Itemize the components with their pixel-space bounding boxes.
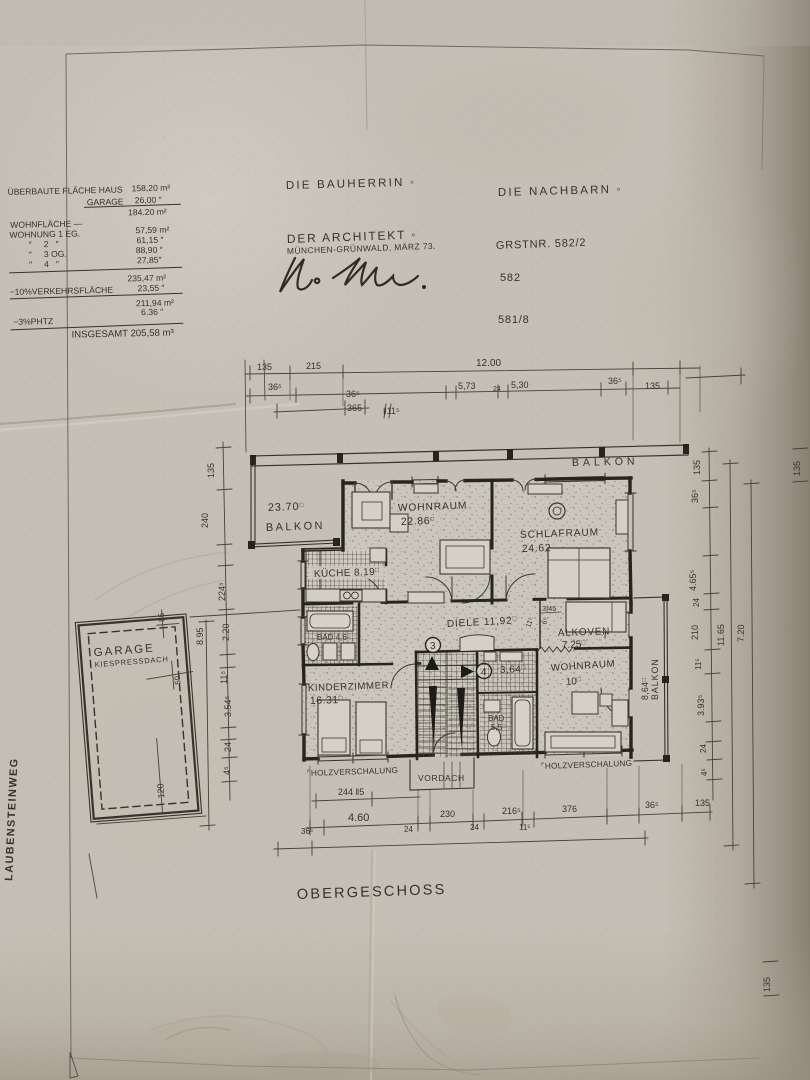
svg-text:4.65⁵: 4.65⁵ bbox=[688, 569, 698, 591]
svg-text:23,55 ″: 23,55 ″ bbox=[137, 283, 164, 294]
svg-text:135: 135 bbox=[695, 798, 710, 808]
svg-text:210: 210 bbox=[690, 625, 700, 640]
svg-text:16.31□: 16.31□ bbox=[310, 694, 344, 707]
svg-text:581/8: 581/8 bbox=[498, 314, 530, 326]
svg-text:ALKOVEN: ALKOVEN bbox=[558, 626, 611, 639]
svg-text:135: 135 bbox=[645, 381, 660, 391]
svg-text:36⁵: 36⁵ bbox=[268, 382, 282, 392]
svg-text:120: 120 bbox=[155, 783, 166, 799]
svg-text:2.20: 2.20 bbox=[221, 623, 231, 641]
svg-text:224⁵: 224⁵ bbox=[217, 582, 227, 601]
svg-text:24: 24 bbox=[699, 744, 708, 753]
svg-text:11⁵: 11⁵ bbox=[219, 671, 229, 684]
svg-text:VORDACH: VORDACH bbox=[418, 773, 465, 783]
svg-text:BAD: BAD bbox=[488, 714, 505, 723]
svg-text:158,20 m²: 158,20 m² bbox=[131, 183, 170, 194]
svg-text:27,85″: 27,85″ bbox=[137, 255, 162, 266]
svg-text:85: 85 bbox=[157, 612, 167, 622]
svg-text:8.95: 8.95 bbox=[195, 627, 205, 645]
svg-text:376: 376 bbox=[562, 804, 577, 814]
svg-text:4⁵: 4⁵ bbox=[222, 766, 232, 775]
svg-text:135: 135 bbox=[762, 977, 772, 992]
svg-text:36⁵: 36⁵ bbox=[346, 389, 360, 399]
svg-text:582: 582 bbox=[500, 272, 521, 284]
svg-text:″ 2 ″: ″ 2 ″ bbox=[29, 239, 59, 250]
svg-text:23.70□: 23.70□ bbox=[268, 501, 305, 514]
svg-text:3.54⁵: 3.54⁵ bbox=[223, 695, 233, 717]
svg-text:61,15 ″: 61,15 ″ bbox=[136, 235, 163, 246]
svg-text:BAD 4,6□: BAD 4,6□ bbox=[317, 633, 351, 642]
svg-text:5,73: 5,73 bbox=[458, 381, 476, 391]
svg-text:24: 24 bbox=[692, 598, 701, 607]
svg-text:135: 135 bbox=[792, 461, 802, 476]
svg-text:BALKON: BALKON bbox=[572, 455, 639, 469]
svg-text:240: 240 bbox=[200, 513, 210, 528]
svg-text:230: 230 bbox=[440, 809, 455, 819]
svg-text:3.93⁵: 3.93⁵ bbox=[696, 694, 706, 716]
svg-text:4.60: 4.60 bbox=[348, 812, 369, 824]
svg-text:KÜCHE 8.19□: KÜCHE 8.19□ bbox=[314, 566, 380, 580]
svg-text:11.65: 11.65 bbox=[716, 624, 726, 646]
svg-text:GARAGE: GARAGE bbox=[87, 196, 124, 207]
svg-text:−3%PHTZ: −3%PHTZ bbox=[13, 316, 53, 327]
svg-text:50: 50 bbox=[173, 675, 183, 685]
svg-text:3|45: 3|45 bbox=[542, 604, 556, 613]
svg-text:36⁵: 36⁵ bbox=[645, 800, 659, 810]
svg-text:244 ‖5: 244 ‖5 bbox=[338, 787, 364, 797]
svg-text:7.20: 7.20 bbox=[736, 624, 746, 642]
svg-text:36⁵: 36⁵ bbox=[608, 376, 622, 386]
svg-text:3: 3 bbox=[430, 641, 436, 652]
svg-text:4⁵: 4⁵ bbox=[700, 768, 709, 776]
svg-text:24: 24 bbox=[493, 386, 501, 393]
svg-text:184.20 m²: 184.20 m² bbox=[128, 207, 167, 218]
svg-text:24: 24 bbox=[470, 823, 479, 832]
svg-text:26,00 ″: 26,00 ″ bbox=[135, 195, 162, 206]
svg-text:36⁵: 36⁵ bbox=[690, 489, 700, 503]
svg-text:57,59 m²: 57,59 m² bbox=[135, 225, 169, 236]
svg-text:6.36 ″: 6.36 ″ bbox=[141, 307, 163, 317]
svg-text:INSGESAMT 205,58 m³: INSGESAMT 205,58 m³ bbox=[71, 327, 173, 340]
svg-text:365: 365 bbox=[347, 403, 362, 413]
svg-text:11⁵: 11⁵ bbox=[519, 823, 531, 832]
svg-text:24: 24 bbox=[223, 742, 233, 752]
svg-text:″ 3 OG.: ″ 3 OG. bbox=[29, 249, 67, 260]
svg-text:12.00: 12.00 bbox=[476, 358, 501, 369]
svg-text:5,30: 5,30 bbox=[511, 380, 529, 390]
svg-text:88,90 ″: 88,90 ″ bbox=[136, 245, 163, 256]
svg-text:36⁵: 36⁵ bbox=[301, 827, 313, 836]
svg-text:24.62: 24.62 bbox=[522, 542, 552, 555]
svg-text:″ 4 ″: ″ 4 ″ bbox=[29, 259, 59, 270]
svg-text:216⁵: 216⁵ bbox=[502, 806, 521, 816]
svg-text:135: 135 bbox=[206, 463, 216, 478]
svg-text:215: 215 bbox=[306, 361, 321, 371]
svg-text:BALKON: BALKON bbox=[650, 658, 660, 700]
svg-text:BALKON: BALKON bbox=[266, 520, 325, 534]
svg-text:11⁵: 11⁵ bbox=[694, 658, 703, 670]
svg-text:135: 135 bbox=[692, 460, 702, 475]
svg-text:24: 24 bbox=[404, 825, 413, 834]
svg-text:22.86□: 22.86□ bbox=[401, 515, 435, 528]
